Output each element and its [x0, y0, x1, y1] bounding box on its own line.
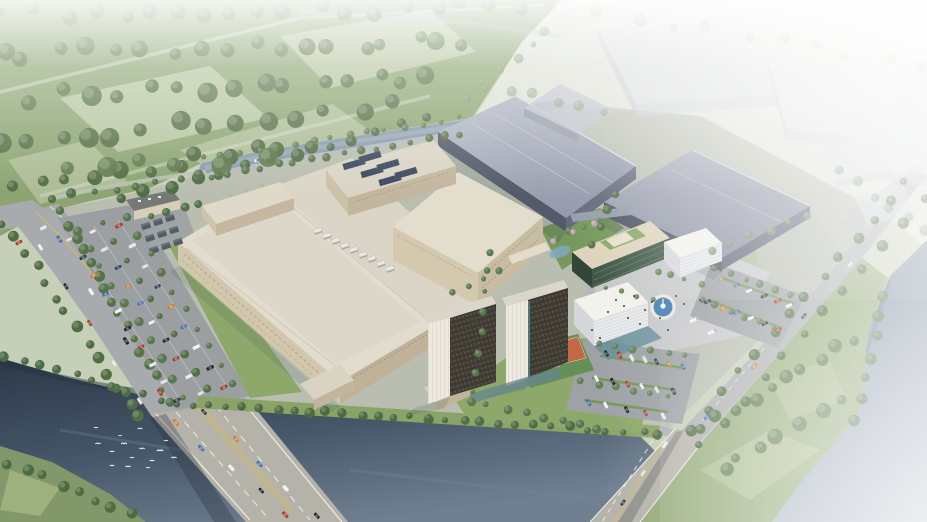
aerial-render-viewport: [0, 0, 927, 522]
campus-rendering: [0, 0, 927, 522]
haze-veil: [0, 0, 927, 522]
haze-layer: [0, 0, 927, 522]
